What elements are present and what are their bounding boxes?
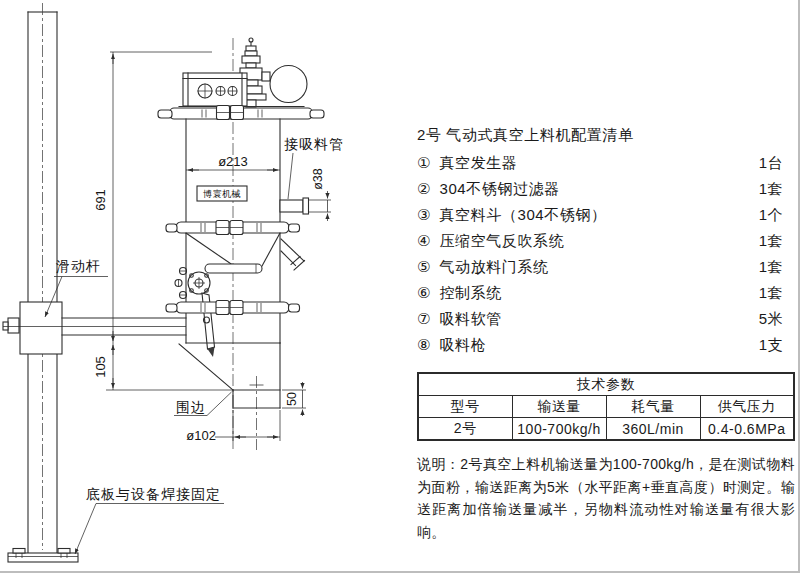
brand-plate: 博寰机械: [197, 186, 247, 201]
dim-38-label: ø38: [311, 168, 325, 190]
item-name: 吸料枪: [439, 336, 758, 355]
item-number: ⑥: [417, 284, 430, 302]
notes: 说明：2号真空上料机输送量为100-700kg/h，是在测试物料为面粉，输送距离…: [417, 453, 795, 543]
clamp-band-lower: [166, 301, 300, 315]
label-skirt: 围边: [174, 392, 232, 416]
item-name: 真空发生器: [439, 154, 758, 173]
item-qty: 1套: [759, 284, 795, 303]
item-number: ⑤: [417, 258, 430, 276]
suction-inlet-pipe: [280, 198, 309, 214]
item-name: 真空料斗（304不锈钢）: [439, 206, 758, 225]
spec-table-title: 技术参数: [418, 373, 794, 396]
spec-table-data-row: 2号 100-700kg/h 360L/min 0.4-0.6MPa: [418, 418, 794, 441]
item-name: 气动放料门系统: [439, 258, 758, 277]
item-qty: 1套: [759, 232, 795, 251]
item-qty: 1个: [759, 206, 795, 225]
parts-list-title: 2号 气动式真空上料机配置清单: [417, 126, 795, 145]
dim-102-label: ø102: [186, 428, 216, 443]
item-name: 压缩空气反吹系统: [439, 232, 758, 251]
base-plate: [8, 549, 78, 563]
parts-list-item: ① 真空发生器 1台: [417, 154, 795, 180]
technical-drawing: 博寰机械: [0, 0, 412, 573]
dim-50: 50: [282, 382, 306, 416]
col-capacity: 输送量: [512, 396, 606, 418]
item-number: ④: [417, 232, 430, 250]
dim-50-label: 50: [285, 392, 299, 406]
dim-105-label: 105: [93, 356, 108, 378]
base-plate-label: 底板与设备焊接固定: [86, 486, 221, 502]
item-number: ①: [417, 154, 430, 172]
brand-label: 博寰机械: [203, 189, 241, 199]
val-pressure: 0.4-0.6MPa: [700, 418, 794, 441]
parts-list: ① 真空发生器 1台 ② 304不锈钢过滤器 1套 ③ 真空料斗（304不锈钢）…: [417, 154, 795, 362]
skirt-label: 围边: [176, 399, 206, 415]
val-model: 2号: [418, 418, 512, 441]
col-model: 型号: [418, 396, 512, 418]
item-number: ②: [417, 180, 430, 198]
lid-flange: [158, 106, 324, 120]
spec-panel: 2号 气动式真空上料机配置清单 ① 真空发生器 1台 ② 304不锈钢过滤器 1…: [417, 126, 795, 543]
parts-list-item: ⑥ 控制系统 1套: [417, 284, 795, 310]
item-qty: 1支: [759, 336, 795, 355]
angled-inlet-pipe: [281, 239, 305, 270]
item-name: 吸料软管: [439, 310, 758, 329]
suction-pipe-label: 接吸料管: [284, 136, 344, 152]
item-number: ⑧: [417, 336, 430, 354]
support-pole: [28, 3, 57, 553]
item-number: ⑦: [417, 310, 430, 328]
dim-213: ø213: [186, 154, 280, 170]
col-air-use: 耗气量: [606, 396, 700, 418]
item-qty: 1套: [759, 258, 795, 277]
slide-block: [3, 302, 62, 354]
ball-silencer: [270, 66, 307, 103]
item-qty: 1套: [759, 180, 795, 199]
parts-list-item: ③ 真空料斗（304不锈钢） 1个: [417, 206, 795, 232]
parts-list-item: ⑤ 气动放料门系统 1套: [417, 258, 795, 284]
spec-table: 技术参数 型号 输送量 耗气量 供气压力 2号 100-700kg/h 360L…: [417, 372, 795, 441]
col-pressure: 供气压力: [700, 396, 794, 418]
spec-table-header-row: 型号 输送量 耗气量 供气压力: [418, 396, 794, 418]
item-number: ③: [417, 206, 430, 224]
parts-list-item: ② 304不锈钢过滤器 1套: [417, 180, 795, 206]
slide-rod-label: 滑动杆: [56, 258, 101, 274]
dim-691-label: 691: [93, 189, 108, 211]
parts-list-item: ⑧ 吸料枪 1支: [417, 336, 795, 362]
support-arm: [62, 318, 186, 335]
val-air-use: 360L/min: [606, 418, 700, 441]
dim-213-label: ø213: [218, 154, 248, 169]
label-base-plate: 底板与设备焊接固定: [75, 486, 224, 554]
parts-list-item: ④ 压缩空气反吹系统 1套: [417, 232, 795, 258]
spec-table-title-row: 技术参数: [418, 373, 794, 396]
item-qty: 1台: [759, 154, 795, 173]
notes-text: 2号真空上料机输送量为100-700kg/h，是在测试物料为面粉，输送距离为5米…: [417, 456, 795, 540]
parts-list-item: ⑦ 吸料软管 5米: [417, 310, 795, 336]
dim-38: ø38: [308, 168, 331, 221]
item-qty: 5米: [759, 310, 795, 329]
item-name: 304不锈钢过滤器: [439, 180, 758, 199]
val-capacity: 100-700kg/h: [512, 418, 606, 441]
item-name: 控制系统: [439, 284, 758, 303]
control-box: [183, 73, 247, 106]
notes-label: 说明：: [417, 456, 460, 472]
